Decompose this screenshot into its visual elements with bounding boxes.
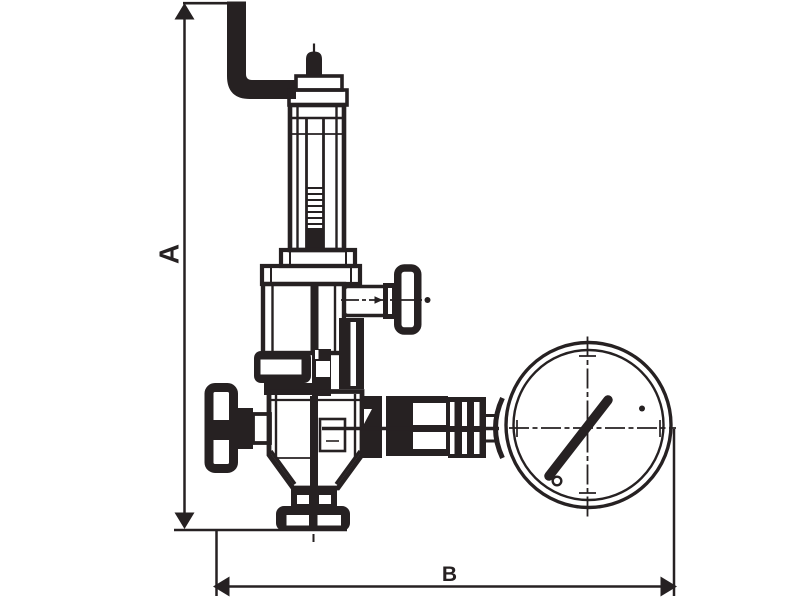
svg-text:A: A — [154, 244, 185, 264]
svg-text:B: B — [442, 563, 457, 586]
